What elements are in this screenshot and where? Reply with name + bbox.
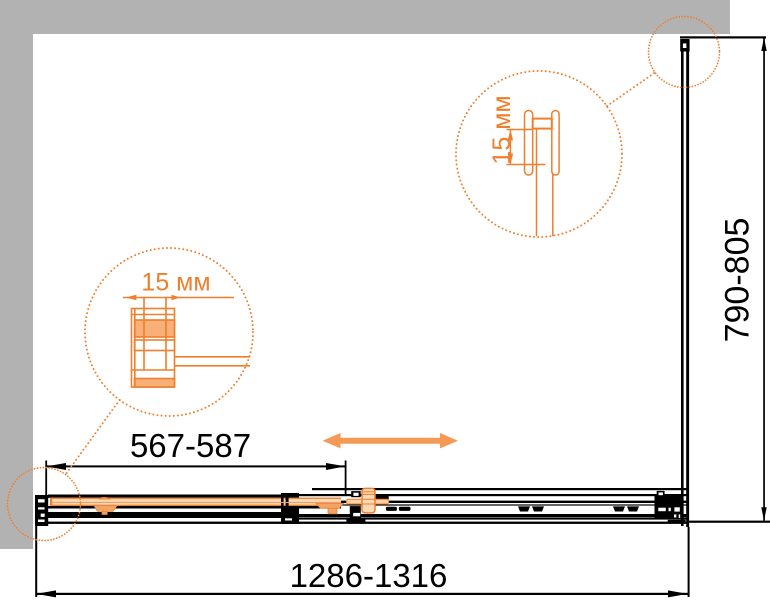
- svg-text:1286-1316: 1286-1316: [290, 557, 448, 594]
- svg-text:15 мм: 15 мм: [488, 95, 516, 164]
- svg-text:15 мм: 15 мм: [141, 269, 210, 297]
- svg-text:790-805: 790-805: [719, 218, 757, 343]
- svg-text:567-587: 567-587: [130, 427, 251, 464]
